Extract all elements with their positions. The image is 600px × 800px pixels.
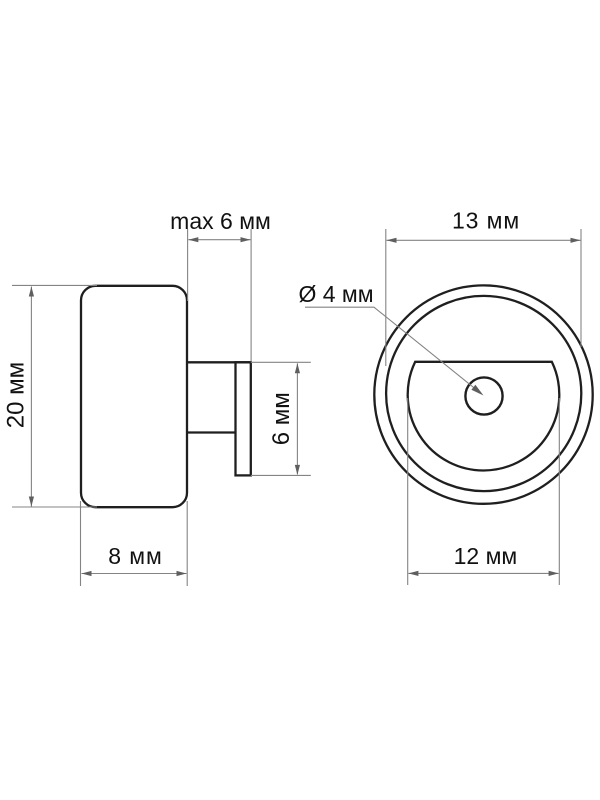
svg-text:6 мм: 6 мм (268, 392, 295, 445)
svg-text:20 мм: 20 мм (3, 362, 30, 428)
svg-text:13 мм: 13 мм (452, 208, 520, 234)
svg-text:Ø 4 мм: Ø 4 мм (298, 281, 373, 307)
svg-text:12 мм: 12 мм (454, 543, 518, 569)
svg-text:8 мм: 8 мм (108, 543, 162, 569)
svg-text:max 6 мм: max 6 мм (170, 208, 271, 234)
